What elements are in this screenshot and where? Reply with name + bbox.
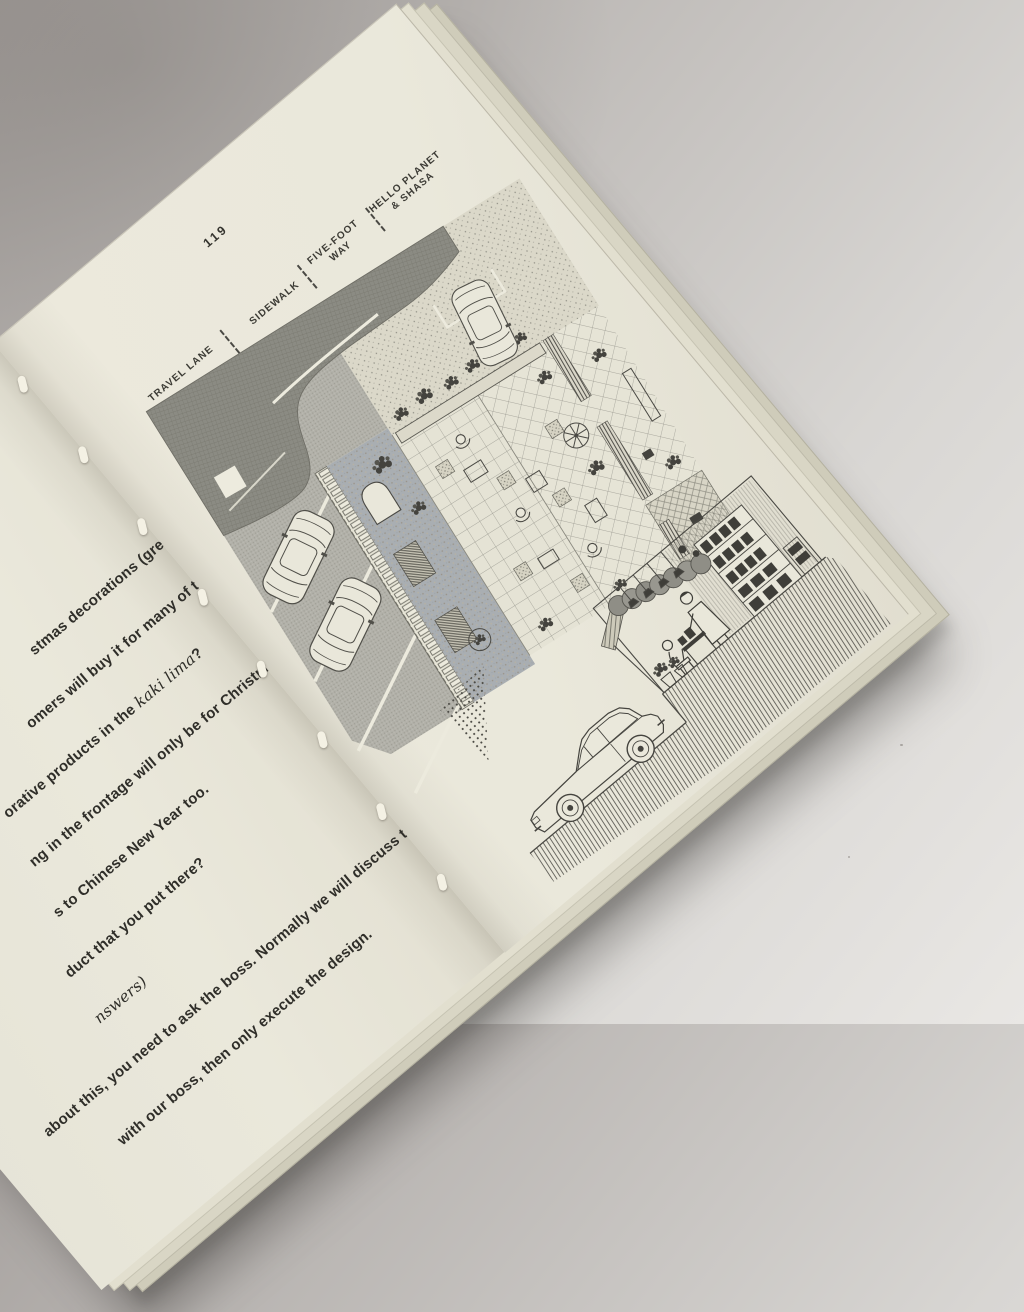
photo-of-open-booklet: { "colors": { "backdrop": "#c6c3c0", "pa… <box>0 0 1024 1024</box>
dust-speck <box>848 856 850 858</box>
dust-speck <box>900 744 903 746</box>
